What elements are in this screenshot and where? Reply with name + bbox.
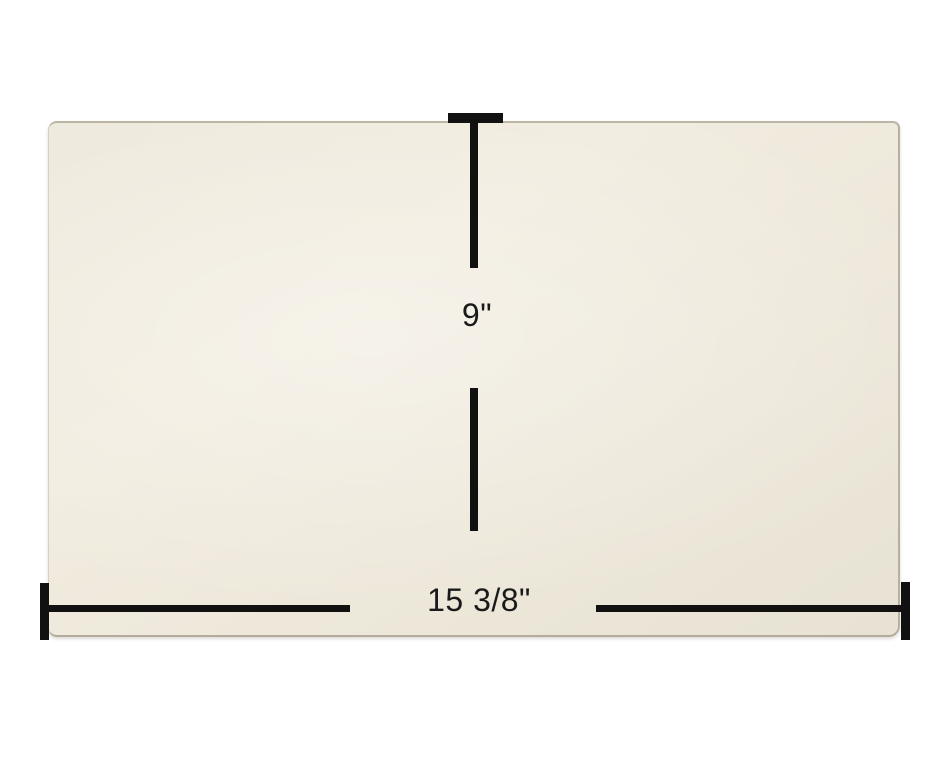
- horizontal-dimension-right-line: [596, 605, 902, 612]
- horizontal-dimension-left-line: [46, 605, 350, 612]
- width-dimension-label: 15 3/8": [427, 584, 531, 616]
- dimension-diagram: 9" 15 3/8": [0, 0, 950, 764]
- vertical-dimension-lower-line: [470, 388, 478, 531]
- vertical-dimension-upper-line: [470, 122, 478, 268]
- height-dimension-label: 9": [462, 299, 492, 331]
- horizontal-dimension-right-cap: [901, 582, 910, 640]
